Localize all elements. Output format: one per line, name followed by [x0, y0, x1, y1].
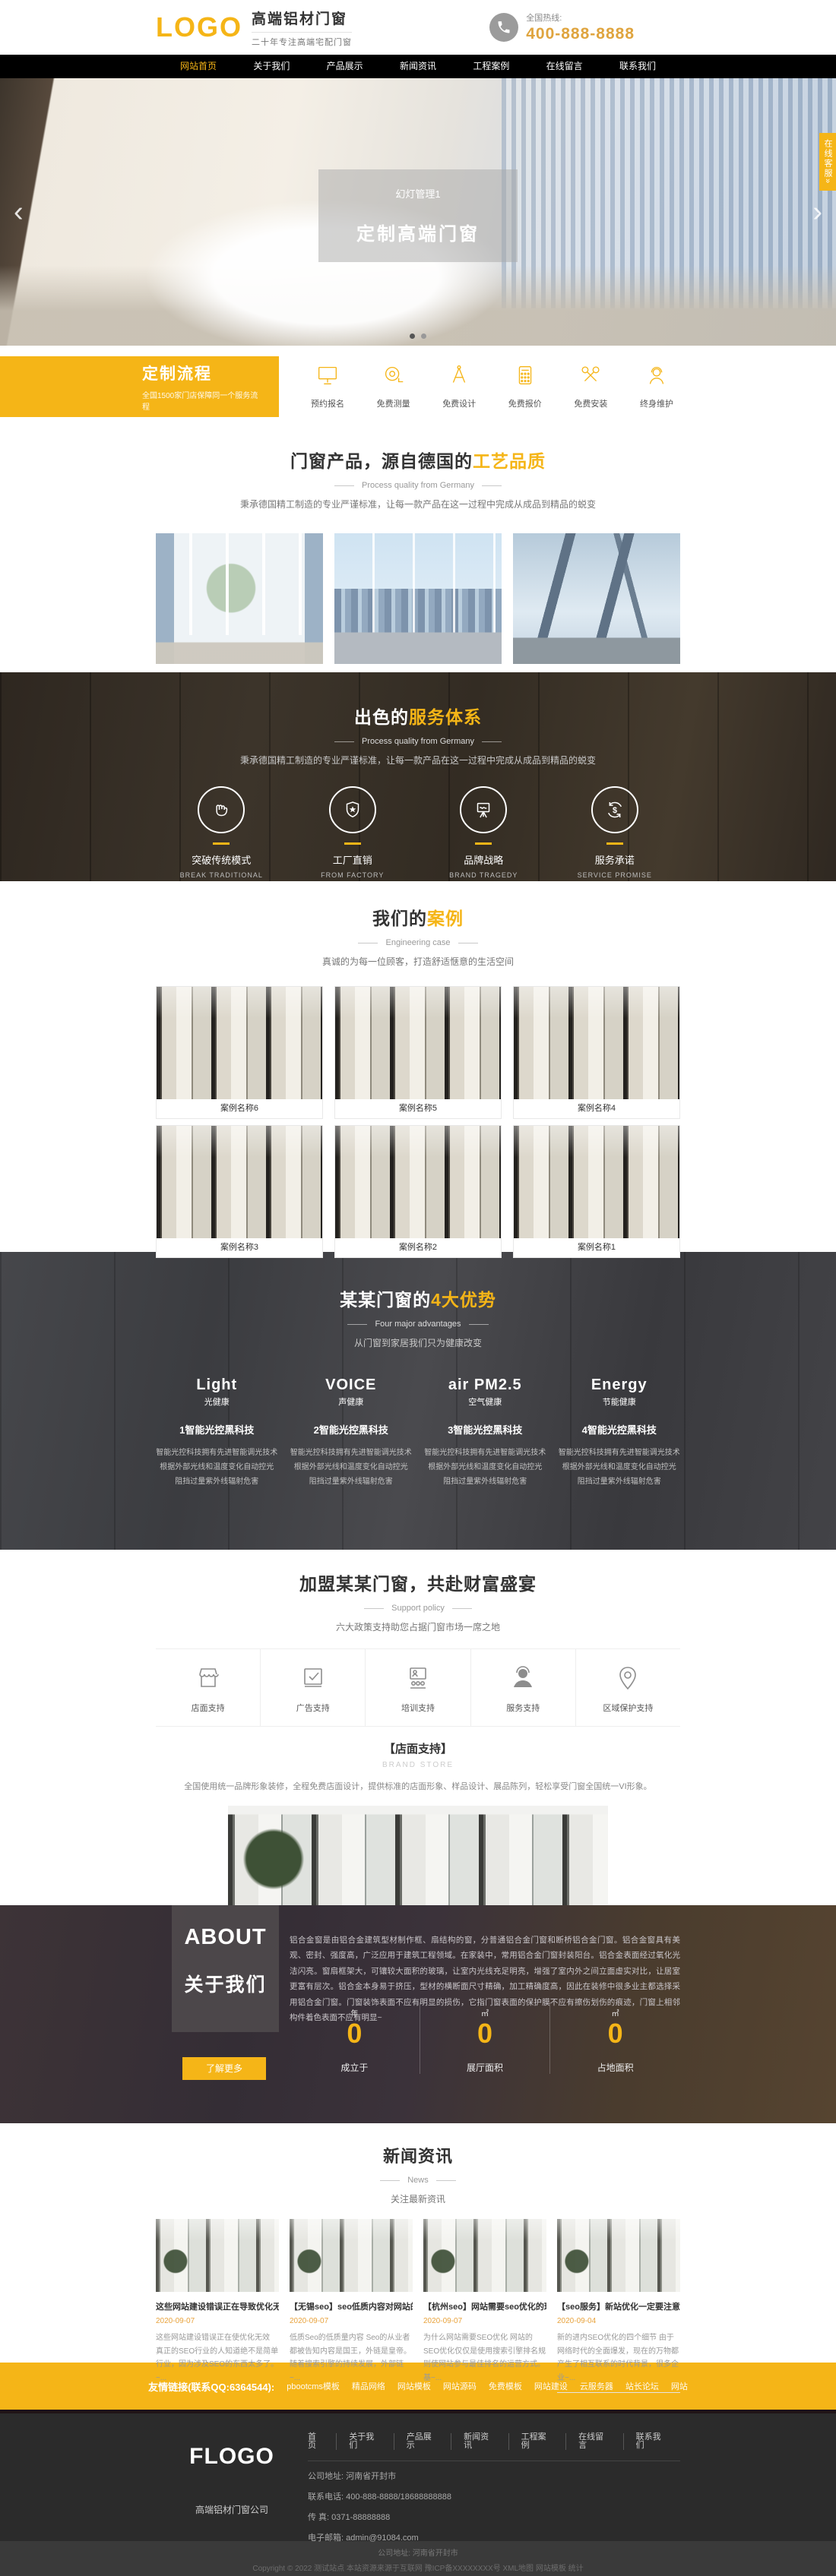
service-items: 突破传统模式 BREAK TRADITIONAL 工厂直销 FROM FACTO…: [156, 786, 680, 879]
join-detail-desc: 全国使用统一品牌形象装修，全程免费店面设计，提供标准的店面形象、样品设计、展品陈…: [156, 1780, 680, 1792]
case-grid: 案例名称6 案例名称5 案例名称4 案例名称3 案例名称2 案例名称1: [156, 986, 680, 1258]
cases-desc: 真诚的为每一位顾客，打造舒适惬意的生活空间: [156, 955, 680, 968]
services-title: 出色的服务体系: [156, 703, 680, 729]
about-zh: 关于我们: [172, 1970, 279, 1997]
news-image: [557, 2219, 680, 2292]
case-image: [157, 1126, 322, 1238]
process-step-design: 免费设计: [435, 362, 483, 409]
voice-health-logo: VOICE声健康: [290, 1372, 413, 1411]
tape-measure-icon: [381, 362, 407, 388]
services-desc: 秉承德国精工制造的专业严谨标准，让每一款产品在这一过程中完成从成品到精品的蜕变: [156, 754, 680, 766]
advantage-voice: VOICE声健康 2智能光控黑科技 智能光控科技拥有先进智能调光技术根据外部光线…: [290, 1372, 413, 1489]
about-panel: ABOUT 关于我们: [172, 1905, 279, 2032]
footer-nav-about[interactable]: 关于我们: [337, 2433, 394, 2450]
logo: LOGO: [156, 14, 242, 41]
news-divider: [557, 2392, 680, 2393]
services-subtitle: Process quality from Germany: [362, 737, 474, 746]
case-card[interactable]: 案例名称4: [513, 986, 680, 1119]
case-card[interactable]: 案例名称6: [156, 986, 323, 1119]
join-detail: 【店面支持】 BRAND STORE 全国使用统一品牌形象装修，全程免费店面设计…: [156, 1740, 680, 1917]
products-desc: 秉承德国精工制造的专业严谨标准，让每一款产品在这一过程中完成从成品到精品的蜕变: [156, 498, 680, 510]
nav-item-about[interactable]: 关于我们: [253, 55, 290, 78]
service-item-promise: $ 服务承诺 SERVICE PROMISE: [549, 786, 681, 879]
air-health-logo: air PM2.5空气健康: [424, 1372, 546, 1411]
process-subtitle: 全国1500家门店保障同一个服务流程: [142, 389, 264, 412]
advantages-section: 某某门窗的4大优势 Four major advantages 从门窗到家居我们…: [0, 1252, 836, 1550]
phone-icon: [489, 13, 518, 42]
stat-founded: 年 0 成立于: [290, 2002, 420, 2074]
carousel-dot-1[interactable]: [410, 333, 415, 339]
join-tabs: 店面支持 广告支持 培训支持 服务支持 区域保护支持: [156, 1648, 680, 1727]
svg-text:$: $: [613, 806, 617, 815]
advantage-energy: Energy节能健康 4智能光控黑科技 智能光控科技拥有先进智能调光技术根据外部…: [559, 1372, 681, 1489]
service-item-tradition: 突破传统模式 BREAK TRADITIONAL: [156, 786, 287, 879]
footer-bottom-address: 公司地址: 河南省开封市: [0, 2546, 836, 2558]
advantage-air: air PM2.5空气健康 3智能光控黑科技 智能光控科技拥有先进智能调光技术根…: [424, 1372, 546, 1489]
footer: FLOGO 高端铝材门窗公司 首页 关于我们 产品展示 新闻资讯 工程案例 在线…: [0, 2410, 836, 2576]
compass-icon: [446, 362, 472, 388]
product-image-structure[interactable]: [513, 533, 680, 664]
footer-tel: 联系电话: 400-888-8888/18688888888: [308, 2490, 680, 2502]
news-title: 新闻资讯: [156, 2143, 680, 2167]
news-image: [290, 2219, 413, 2292]
case-card[interactable]: 案例名称2: [334, 1125, 502, 1258]
footer-nav: 首页 关于我们 产品展示 新闻资讯 工程案例 在线留言 联系我们: [308, 2433, 680, 2450]
training-icon: [403, 1663, 433, 1693]
join-subtitle: Support policy: [391, 1604, 445, 1613]
wrench-icon: [578, 362, 603, 388]
news-image: [423, 2219, 546, 2292]
process-box: 定制流程 全国1500家门店保障同一个服务流程: [0, 356, 279, 417]
news-image: [156, 2219, 279, 2292]
light-health-logo: Light光健康: [156, 1372, 278, 1411]
footer-nav-home[interactable]: 首页: [308, 2433, 337, 2450]
cases-subtitle: Engineering case: [385, 938, 450, 947]
join-section: 加盟某某门窗，共赴财富盛宴 Support policy 六大政策支持助您占据门…: [0, 1550, 836, 1905]
footer-bottom: 公司地址: 河南省开封市 Copyright © 2022 测试站点 本站资源来…: [0, 2541, 836, 2576]
cases-section: 我们的案例 Engineering case 真诚的为每一位顾客，打造舒适惬意的…: [0, 881, 836, 1252]
stat-showroom: ㎡ 0 展厅面积: [420, 2002, 551, 2074]
news-card[interactable]: 【seo服务】新站优化一定要注意这些细 2020-09-04 新的进内SEO优化…: [557, 2219, 680, 2393]
carousel-dots: [0, 333, 836, 339]
advantages-desc: 从门窗到家居我们只为健康改变: [156, 1336, 680, 1349]
site-title: 高端铝材门窗: [252, 8, 352, 28]
join-tab-service[interactable]: 服务支持: [471, 1649, 576, 1726]
footer-nav-cases[interactable]: 工程案例: [509, 2433, 566, 2450]
join-tab-store[interactable]: 店面支持: [156, 1649, 261, 1726]
case-image: [335, 987, 501, 1099]
news-card[interactable]: 【杭州seo】网站需要seo优化的理由 2020-09-07 为什么网站需要SE…: [423, 2219, 546, 2393]
carousel-prev-arrow[interactable]: ‹: [14, 198, 24, 226]
join-tab-territory[interactable]: 区域保护支持: [576, 1649, 680, 1726]
money-cycle-icon: $: [591, 786, 638, 833]
site-subtitle: 二十年专注高端宅配门窗: [252, 32, 352, 48]
about-en: ABOUT: [172, 1925, 279, 1950]
main-nav: 网站首页 关于我们 产品展示 新闻资讯 工程案例 在线留言 联系我们: [0, 55, 836, 78]
news-section: 新闻资讯 News 关注最新资讯 这些网站建设错误正在导致优化无效 2020-0…: [0, 2123, 836, 2363]
nav-item-message[interactable]: 在线留言: [546, 55, 583, 78]
join-detail-en: BRAND STORE: [156, 1761, 680, 1769]
join-detail-title: 【店面支持】: [156, 1740, 680, 1756]
process-step-install: 免费安装: [567, 362, 614, 409]
process-title: 定制流程: [142, 362, 264, 384]
cases-title: 我们的案例: [156, 904, 680, 930]
products-subtitle: Process quality from Germany: [362, 481, 474, 490]
case-card[interactable]: 案例名称1: [513, 1125, 680, 1258]
process-step-booking: 预约报名: [304, 362, 351, 409]
process-step-aftercare: 终身维护: [633, 362, 680, 409]
online-service-tab[interactable]: 在线客服»: [819, 133, 836, 191]
hotline-number: 400-888-8888: [526, 25, 635, 43]
about-section: ABOUT 关于我们 了解更多 铝合金窗是由铝合金建筑型材制作框、扇结构的窗，分…: [0, 1905, 836, 2123]
ad-check-icon: [298, 1663, 328, 1693]
about-more-button[interactable]: 了解更多: [182, 2057, 266, 2080]
top-header: LOGO 高端铝材门窗 二十年专注高端宅配门窗 全国热线: 400-888-88…: [0, 0, 836, 55]
case-image: [335, 1126, 501, 1238]
hotline: 全国热线: 400-888-8888: [489, 11, 635, 43]
products-title: 门窗产品，源自德国的工艺品质: [156, 447, 680, 473]
monitor-icon: [315, 362, 340, 388]
shield-star-icon: [329, 786, 376, 833]
footer-nav-products[interactable]: 产品展示: [394, 2433, 451, 2450]
energy-health-logo: Energy节能健康: [559, 1372, 681, 1411]
case-card[interactable]: 案例名称3: [156, 1125, 323, 1258]
carousel-next-arrow[interactable]: ›: [812, 198, 822, 226]
footer-divider: [308, 2461, 680, 2461]
hotline-label: 全国热线:: [526, 11, 635, 24]
nav-item-contact[interactable]: 联系我们: [619, 55, 656, 78]
slide-label: 幻灯管理1: [318, 169, 518, 201]
service-item-factory: 工厂直销 FROM FACTORY: [287, 786, 419, 879]
process-step-measure: 免费测量: [370, 362, 417, 409]
easel-icon: [460, 786, 507, 833]
process-step-quote: 免费报价: [502, 362, 549, 409]
case-image: [514, 987, 679, 1099]
footer-email: 电子邮箱: admin@91084.com: [308, 2531, 680, 2543]
process-section: 定制流程 全国1500家门店保障同一个服务流程 预约报名 免费测量 免费设计 免…: [0, 346, 836, 422]
product-image-cityview[interactable]: [334, 533, 502, 664]
location-pin-icon: [613, 1663, 643, 1693]
case-image: [157, 987, 322, 1099]
footer-fax: 传 真: 0371-88888888: [308, 2511, 680, 2523]
advantage-items: Light光健康 1智能光控黑科技 智能光控科技拥有先进智能调光技术根据外部光线…: [156, 1372, 680, 1489]
nav-item-news[interactable]: 新闻资讯: [400, 55, 436, 78]
join-title: 加盟某某门窗，共赴财富盛宴: [156, 1569, 680, 1595]
service-person-icon: [508, 1663, 538, 1693]
aftercare-icon: [644, 362, 670, 388]
nav-item-products[interactable]: 产品展示: [327, 55, 363, 78]
stat-area: ㎡ 0 占地面积: [550, 2002, 680, 2074]
fist-icon: [198, 786, 245, 833]
footer-nav-message[interactable]: 在线留言: [566, 2433, 623, 2450]
advantage-light: Light光健康 1智能光控黑科技 智能光控科技拥有先进智能调光技术根据外部光线…: [156, 1372, 278, 1489]
news-subtitle: News: [407, 2176, 429, 2185]
page: LOGO 高端铝材门窗 二十年专注高端宅配门窗 全国热线: 400-888-88…: [0, 0, 836, 2576]
footer-address: 公司地址: 河南省开封市: [308, 2470, 680, 2482]
nav-item-cases[interactable]: 工程案例: [473, 55, 509, 78]
about-stats: 年 0 成立于 ㎡ 0 展厅面积 ㎡ 0 占地面积: [290, 2002, 680, 2074]
footer-company: 高端铝材门窗公司: [156, 2503, 308, 2516]
product-image-window[interactable]: [156, 533, 323, 664]
hero-banner: 幻灯管理1 定制高端门窗 ‹ › 在线客服»: [0, 78, 836, 346]
nav-item-home[interactable]: 网站首页: [180, 55, 217, 78]
case-image: [514, 1126, 679, 1238]
advantages-title: 某某门窗的4大优势: [156, 1285, 680, 1311]
services-section: 出色的服务体系 Process quality from Germany 秉承德…: [0, 672, 836, 881]
news-grid: 这些网站建设错误正在导致优化无效 2020-09-07 这些网站建设错误正在使优…: [156, 2219, 680, 2393]
join-tab-training[interactable]: 培训支持: [366, 1649, 470, 1726]
case-card[interactable]: 案例名称5: [334, 986, 502, 1119]
join-detail-image: [228, 1806, 608, 1917]
service-item-brand: 品牌战略 BRAND TRAGEDY: [418, 786, 549, 879]
slide-caption: 幻灯管理1 定制高端门窗: [318, 169, 518, 262]
storefront-icon: [193, 1663, 223, 1693]
join-tab-ad[interactable]: 广告支持: [261, 1649, 366, 1726]
join-desc: 六大政策支持助您占据门窗市场一席之地: [156, 1620, 680, 1633]
news-card[interactable]: 这些网站建设错误正在导致优化无效 2020-09-07 这些网站建设错误正在使优…: [156, 2219, 279, 2393]
slide-title: 定制高端门窗: [318, 219, 518, 245]
advantages-subtitle: Four major advantages: [375, 1320, 461, 1329]
footer-nav-contact[interactable]: 联系我们: [624, 2433, 680, 2450]
calculator-icon: [512, 362, 538, 388]
news-card[interactable]: 【无锡seo】seo低质内容对网站的影响 2020-09-07 低质Seo的低质…: [290, 2219, 413, 2393]
footer-nav-news[interactable]: 新闻资讯: [451, 2433, 508, 2450]
footer-copyright: Copyright © 2022 测试站点 本站资源来源于互联网 豫ICP备XX…: [0, 2562, 836, 2573]
carousel-dot-2[interactable]: [421, 333, 426, 339]
process-steps: 预约报名 免费测量 免费设计 免费报价 免费安装 终身维护: [304, 362, 680, 409]
footer-logo: FLOGO: [156, 2444, 308, 2470]
products-section: 门窗产品，源自德国的工艺品质 Process quality from Germ…: [0, 422, 836, 672]
product-gallery: [156, 533, 680, 664]
logo-area[interactable]: LOGO 高端铝材门窗 二十年专注高端宅配门窗: [156, 8, 352, 48]
news-desc: 关注最新资讯: [156, 2192, 680, 2205]
